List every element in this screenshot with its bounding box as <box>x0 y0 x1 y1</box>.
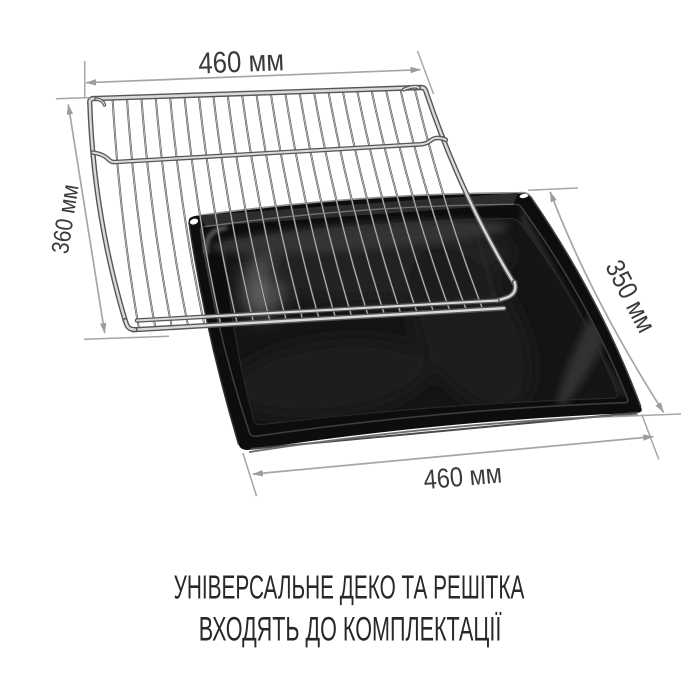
svg-text:460 мм: 460 мм <box>198 43 285 80</box>
svg-text:ВХОДЯТЬ ДО КОМПЛЕКТАЦІЇ: ВХОДЯТЬ ДО КОМПЛЕКТАЦІЇ <box>199 611 502 649</box>
svg-text:УНІВЕРСАЛЬНЕ ДЕКО ТА РЕШІТКА: УНІВЕРСАЛЬНЕ ДЕКО ТА РЕШІТКА <box>174 568 525 605</box>
